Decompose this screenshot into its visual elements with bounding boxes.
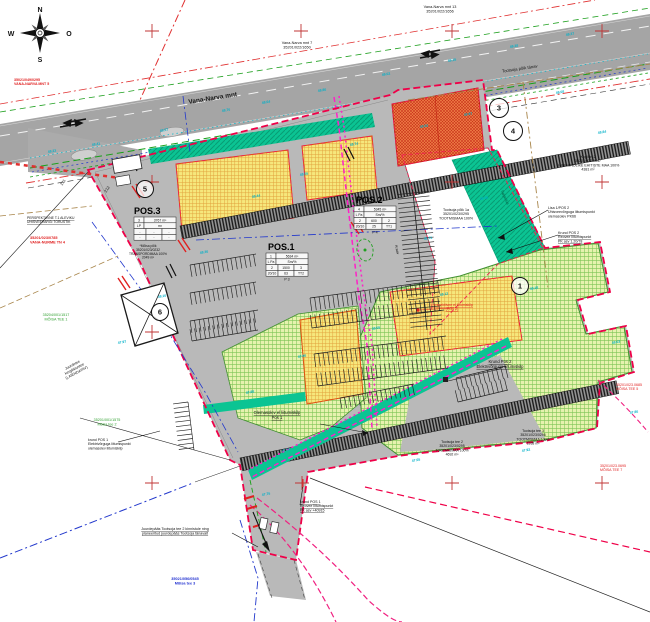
label-juurdepaas: Juurdepääs Tootsoja tee 2 kinnistule nin… — [141, 527, 209, 535]
svg-text:25: 25 — [372, 225, 376, 229]
label-moisa-tee-5: 35201/023.0685MÕISA TEE 5 — [616, 383, 642, 391]
svg-text:TT1: TT1 — [386, 225, 392, 229]
label-moisa-tee-7: 35201/023.0695MÕISA TEE 7 — [600, 464, 626, 472]
label-moisa-tee-3: 35021/056/0545Mõisa tee 3 — [171, 577, 198, 585]
label-tootsoja-poik-1a: Tootsoja põik 1a35201/023/0295TOOTMISMAA… — [439, 208, 474, 220]
pos3-title: POS.3 — [134, 206, 161, 216]
svg-text:Sm/%: Sm/% — [375, 213, 384, 217]
svg-text:-: - — [168, 230, 169, 234]
svg-text:3: 3 — [138, 218, 140, 222]
svg-text:-: - — [153, 230, 154, 234]
position-marker-5: 5 — [137, 181, 154, 198]
svg-text:4: 4 — [358, 207, 360, 211]
plan-canvas: 48.2348.4148.5748.7048.6448.8649.0249.15… — [0, 0, 650, 622]
svg-text:2: 2 — [271, 266, 273, 270]
pos1-title: POS.1 — [268, 242, 295, 252]
svg-text:3: 3 — [300, 266, 302, 270]
label-compass-w: W — [8, 31, 15, 38]
svg-text:600: 600 — [371, 219, 377, 223]
svg-text:5: 5 — [143, 185, 147, 194]
svg-text:-: - — [168, 236, 169, 240]
svg-text:5634 m²: 5634 m² — [286, 254, 299, 258]
position-marker-6: 6 — [152, 304, 169, 321]
svg-text:P 4: P 4 — [372, 231, 377, 235]
position-marker-1: 1 — [512, 278, 529, 295]
svg-text:5345 m²: 5345 m² — [374, 207, 387, 211]
svg-text:3: 3 — [497, 104, 501, 113]
label-moisa-tee-1: 35204/001/1517MÕISA TEE 1 — [43, 313, 70, 321]
svg-text:L Pa: L Pa — [356, 213, 363, 217]
svg-text:TT2: TT2 — [298, 272, 304, 276]
position-marker-4: 4 — [504, 122, 523, 141]
svg-text:6: 6 — [158, 308, 162, 317]
label-compass-n: N — [37, 7, 42, 14]
svg-text:-: - — [139, 236, 140, 240]
svg-text:2: 2 — [359, 219, 361, 223]
position-marker-3: 3 — [490, 99, 509, 118]
svg-text:L Pa: L Pa — [268, 260, 275, 264]
svg-text:-: - — [139, 230, 140, 234]
svg-text:20/10: 20/10 — [268, 272, 277, 276]
label-moisa-tee-2: 35201/001/1575Mõisa tee 2 — [94, 418, 121, 426]
svg-text:LP: LP — [137, 224, 142, 228]
svg-text:-: - — [153, 236, 154, 240]
svg-text:Sm/%: Sm/% — [287, 260, 296, 264]
label-compass-o: O — [66, 31, 72, 38]
site-plan-drawing: 48.2348.4148.5748.7048.6448.8649.0249.15… — [0, 0, 650, 622]
label-persp-veevark: PERSPEKTIIVNE T.1 ALEVIKUÜHISVEEVÄRGI TO… — [27, 216, 75, 224]
svg-text:1: 1 — [270, 254, 272, 258]
pos2-title: POS.2 — [356, 195, 383, 205]
svg-text:3767 m²: 3767 m² — [154, 218, 167, 222]
label-vana-narva-mnt-7: Vana-Narva mnt 735201/022/1650 — [282, 41, 313, 49]
svg-text:63: 63 — [284, 272, 288, 276]
label-vana-narva-mnt-13: Vana-Narva mnt 1335201/022/1656 — [424, 5, 457, 13]
label-compass-s: S — [38, 57, 43, 64]
svg-text:2: 2 — [388, 219, 390, 223]
svg-text:1500: 1500 — [282, 266, 290, 270]
svg-text:P 3: P 3 — [284, 278, 289, 282]
svg-text:20/10: 20/10 — [356, 225, 365, 229]
svg-text:1: 1 — [518, 282, 522, 291]
